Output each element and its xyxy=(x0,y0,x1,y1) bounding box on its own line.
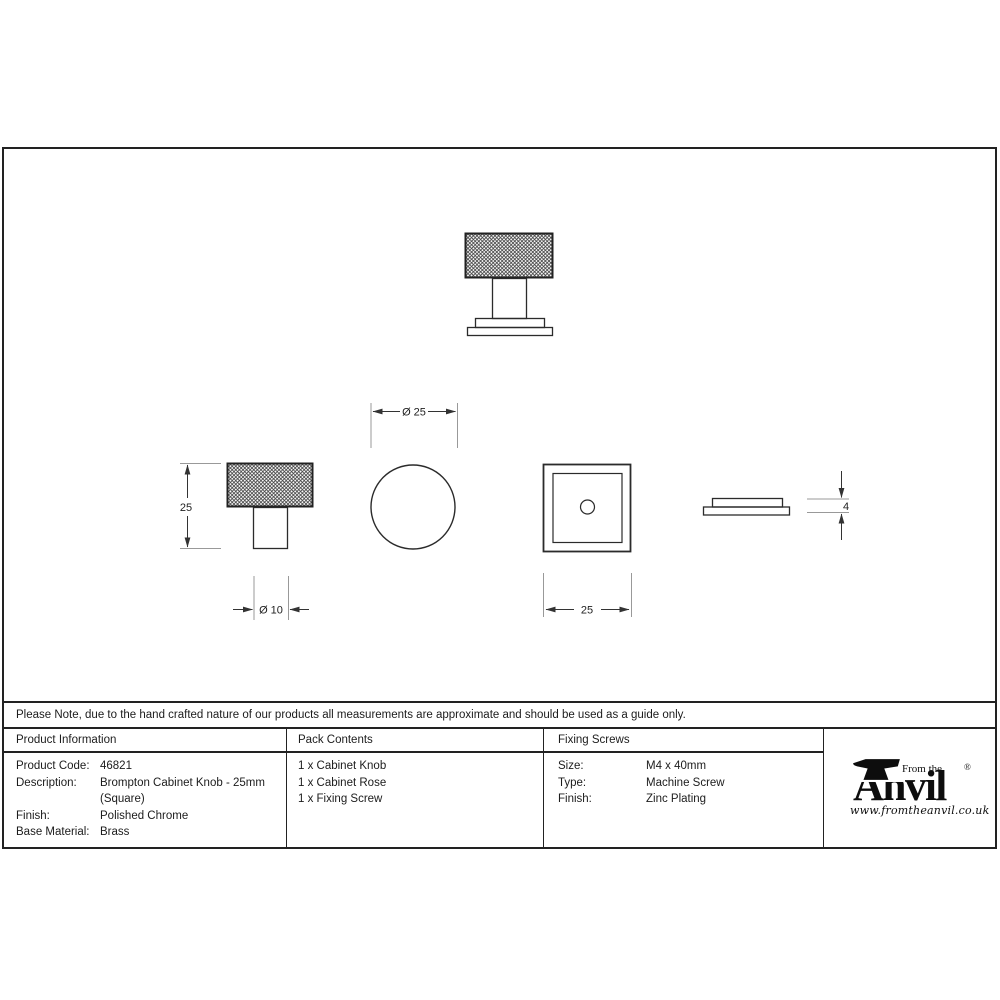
screw-size-value: M4 x 40mm xyxy=(646,759,706,773)
rose-upper-tier xyxy=(476,319,545,328)
brand-url: www.fromtheanvil.co.uk xyxy=(850,804,989,817)
table-header-underline xyxy=(2,751,823,753)
product-code-label: Product Code: xyxy=(16,759,90,773)
screw-finish-value: Zinc Plating xyxy=(646,792,706,806)
column-divider-1 xyxy=(286,728,288,849)
brand-logo-cell: Anvil From the ® www.fromtheanvil.co.uk xyxy=(823,728,997,849)
finish-label: Finish: xyxy=(16,809,50,823)
pack-item-2: 1 x Cabinet Rose xyxy=(298,776,386,790)
brand-tagline: From the xyxy=(902,763,942,775)
dimension-label-thickness: 4 xyxy=(843,501,849,513)
note-row-top-border xyxy=(2,701,997,703)
description-label: Description: xyxy=(16,776,77,790)
knob-stem xyxy=(493,279,527,319)
rose-profile-drawing: 4 xyxy=(704,471,850,540)
pack-item-3: 1 x Fixing Screw xyxy=(298,792,382,806)
finish-value: Polished Chrome xyxy=(100,809,188,823)
product-code-value: 46821 xyxy=(100,759,132,773)
fixing-screws-header: Fixing Screws xyxy=(558,733,630,747)
description-value-line2: (Square) xyxy=(100,792,145,806)
rose-lower-tier xyxy=(468,328,553,336)
front-elevation-drawing xyxy=(466,234,553,336)
rose-inner-square xyxy=(553,474,622,543)
dimension-label-diameter: Ø 25 xyxy=(402,407,426,419)
rose-outer-square xyxy=(544,465,631,552)
base-material-value: Brass xyxy=(100,825,129,839)
top-view-circle-drawing: Ø 25 xyxy=(371,403,458,549)
screw-size-label: Size: xyxy=(558,759,584,773)
description-value: Brompton Cabinet Knob - 25mm xyxy=(100,776,265,790)
knob-head-knurled xyxy=(466,234,553,278)
dimension-label-height: 25 xyxy=(180,502,192,514)
product-information-header: Product Information xyxy=(16,733,116,747)
screw-type-label: Type: xyxy=(558,776,586,790)
knob-head-knurled xyxy=(228,464,313,507)
screw-hole xyxy=(581,500,595,514)
registered-mark: ® xyxy=(964,762,971,772)
rose-upper-tier xyxy=(713,499,783,508)
rose-lower-tier xyxy=(704,507,790,515)
dimension-label-rose-width: 25 xyxy=(581,605,593,617)
base-material-label: Base Material: xyxy=(16,825,90,839)
dimension-label-stem: Ø 10 xyxy=(259,605,283,617)
anvil-icon xyxy=(851,757,903,782)
knob-stem xyxy=(254,508,288,549)
face-view-square-drawing: 25 xyxy=(544,465,632,618)
pack-contents-header: Pack Contents xyxy=(298,733,373,747)
screw-finish-label: Finish: xyxy=(558,792,592,806)
knob-top-circle xyxy=(371,465,455,549)
column-divider-2 xyxy=(543,728,545,849)
disclaimer-note: Please Note, due to the hand crafted nat… xyxy=(16,708,686,722)
side-elevation-drawing: 25 Ø 10 xyxy=(180,464,313,621)
pack-item-1: 1 x Cabinet Knob xyxy=(298,759,386,773)
technical-drawings: 25 Ø 10 Ø 25 25 4 xyxy=(0,0,1000,1000)
screw-type-value: Machine Screw xyxy=(646,776,725,790)
